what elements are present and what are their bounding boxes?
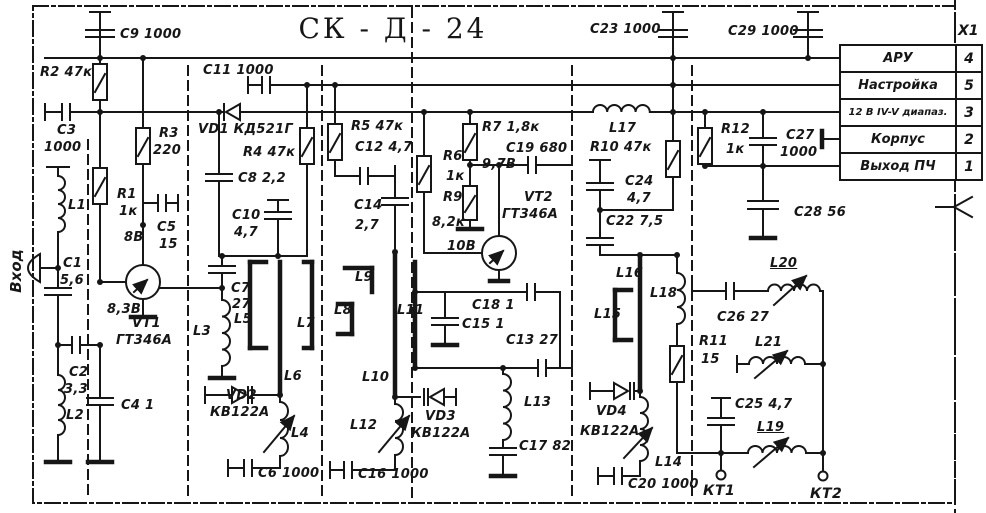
connector-row-agc: АРУ 4 — [841, 46, 981, 73]
if-takeoff-wire — [415, 292, 572, 376]
c26-capacitor — [692, 283, 768, 299]
c12-capacitor — [335, 166, 395, 186]
r4-resistor — [300, 85, 314, 256]
c7-capacitor — [209, 256, 235, 288]
c4-capacitor — [87, 345, 113, 462]
l8-stripline — [338, 304, 352, 334]
l7-stripline — [304, 262, 312, 348]
l13-coil — [503, 368, 511, 448]
r1-resistor — [93, 112, 107, 282]
c19-capacitor — [499, 157, 572, 173]
connector-name: X1 — [958, 23, 979, 39]
supply-bus-c3-vd1-l17 — [45, 104, 839, 120]
l2-coil — [46, 345, 70, 462]
r7-resistor — [463, 112, 477, 165]
connector-row-label: Корпус — [841, 127, 955, 152]
c2-capacitor — [58, 337, 100, 353]
c24-capacitor — [587, 160, 613, 210]
vt1-transistor — [100, 225, 160, 317]
kt1-test-point — [717, 453, 726, 480]
page-title: СК - Д - 24 — [298, 12, 488, 45]
connector-row-label: Настройка — [841, 73, 955, 98]
connector-row-label: Выход ПЧ — [841, 154, 955, 179]
c14-capacitor — [382, 186, 408, 252]
c29-feedthrough-capacitor — [794, 12, 822, 58]
c20-capacitor — [598, 468, 640, 484]
c16-capacitor — [330, 462, 395, 478]
connector-row-pin: 2 — [955, 127, 981, 152]
connector-table: АРУ 4 Настройка 5 12 В IV-V диапаз. 3 Ко… — [839, 44, 983, 181]
l19-coil — [748, 438, 806, 467]
connector-row-pin: 4 — [955, 46, 981, 71]
c10-capacitor — [265, 200, 291, 256]
connector-row-tuning: Настройка 5 — [841, 73, 981, 100]
c22-capacitor — [587, 210, 613, 255]
vd4-varicap — [590, 383, 640, 399]
l1-coil — [47, 167, 69, 268]
test-point-label-kt2: КТ2 — [810, 486, 842, 502]
connector-row-ground: Корпус 2 — [841, 127, 981, 154]
enclosure-border — [33, 0, 955, 513]
vd2-varicap — [205, 387, 280, 403]
l9-stripline — [345, 268, 372, 292]
c5-capacitor — [143, 195, 178, 211]
connector-row-pin: 3 — [955, 100, 981, 125]
r12-resistor — [698, 112, 712, 166]
r5-resistor — [328, 85, 342, 176]
input-label: Вход — [7, 239, 25, 303]
l18-coil — [677, 255, 685, 346]
connector-row-pin: 1 — [955, 154, 981, 179]
connector-row-label: 12 В IV-V диапаз. — [841, 100, 955, 125]
r6-resistor — [417, 112, 431, 253]
c17-capacitor — [490, 448, 516, 476]
connector-row-label: АРУ — [841, 46, 955, 71]
c6-capacitor — [228, 460, 280, 476]
c1-capacitor — [45, 268, 71, 345]
c23-feedthrough-capacitor — [659, 12, 687, 112]
c15-capacitor — [432, 292, 458, 345]
c28-capacitor — [748, 166, 778, 238]
l3-coil — [210, 288, 234, 378]
l14-coil — [624, 391, 652, 476]
r9-resistor — [458, 165, 482, 229]
vd3-varicap — [395, 389, 456, 405]
l5-stripline — [250, 262, 266, 348]
r11-resistor — [670, 346, 684, 453]
junction-dots — [55, 55, 826, 456]
c13-capacitor — [538, 360, 546, 376]
c9-feedthrough-capacitor — [86, 12, 114, 58]
c27-capacitor — [750, 112, 776, 166]
connector-row-if-output: Выход ПЧ 1 — [841, 154, 981, 179]
c8-capacitor — [206, 112, 232, 256]
r3-resistor — [136, 58, 150, 225]
vt2-transistor — [482, 165, 516, 281]
connector-row-pin: 5 — [955, 73, 981, 98]
l21-coil — [737, 351, 823, 378]
c18-capacitor — [527, 284, 560, 300]
schematic-page: { "title": "СК - Д - 24", "input_label":… — [0, 0, 986, 513]
c25-capacitor — [708, 398, 734, 453]
connector-row-supply: 12 В IV-V диапаз. 3 — [841, 100, 981, 127]
l15-stripline — [615, 290, 631, 340]
r10-resistor — [600, 112, 680, 210]
l4-coil — [264, 395, 294, 468]
l20-coil — [768, 276, 823, 305]
r2-resistor — [93, 58, 107, 112]
kt2-test-point — [819, 453, 828, 481]
l12-coil — [379, 397, 409, 470]
test-point-label-kt1: КТ1 — [703, 483, 735, 499]
ground-pin-stub — [822, 131, 839, 147]
